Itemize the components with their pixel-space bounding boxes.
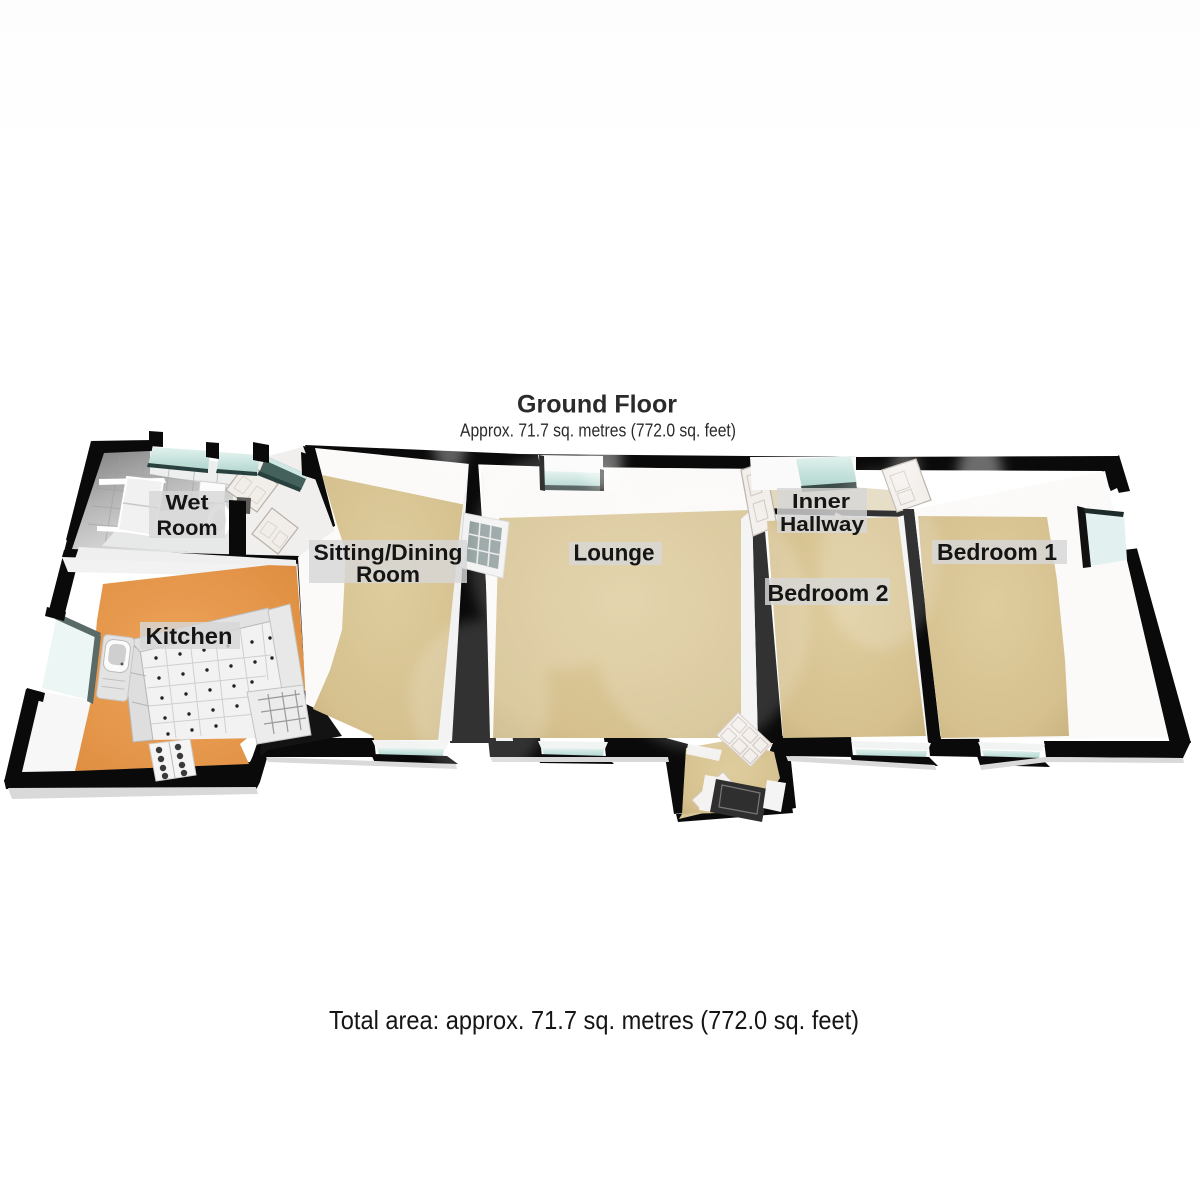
svg-text:Approx. 71.7 sq. metres (772.0: Approx. 71.7 sq. metres (772.0 sq. feet)	[460, 420, 736, 441]
svg-text:Lounge: Lounge	[574, 540, 655, 566]
svg-text:Room: Room	[157, 516, 218, 540]
svg-text:Wet: Wet	[166, 491, 209, 515]
svg-text:Hallway: Hallway	[780, 513, 865, 536]
svg-text:Inner: Inner	[792, 490, 850, 513]
svg-text:Kitchen: Kitchen	[146, 623, 233, 649]
svg-text:Bedroom 2: Bedroom 2	[768, 580, 889, 606]
svg-text:Room: Room	[356, 562, 420, 587]
svg-text:Bedroom 1: Bedroom 1	[937, 539, 1057, 565]
svg-text:Total area: approx. 71.7 sq. m: Total area: approx. 71.7 sq. metres (772…	[329, 1005, 859, 1035]
svg-text:Ground Floor: Ground Floor	[517, 391, 677, 419]
